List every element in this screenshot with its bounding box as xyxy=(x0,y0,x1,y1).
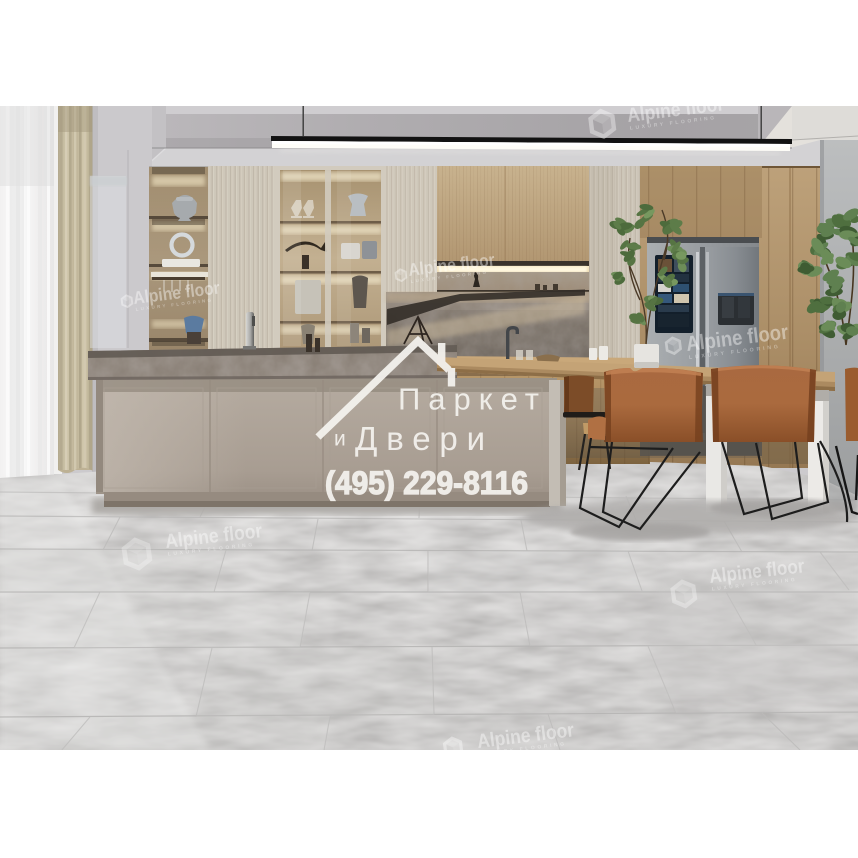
svg-text:(495) 229-8116: (495) 229-8116 xyxy=(325,465,528,501)
svg-text:и: и xyxy=(334,428,346,451)
